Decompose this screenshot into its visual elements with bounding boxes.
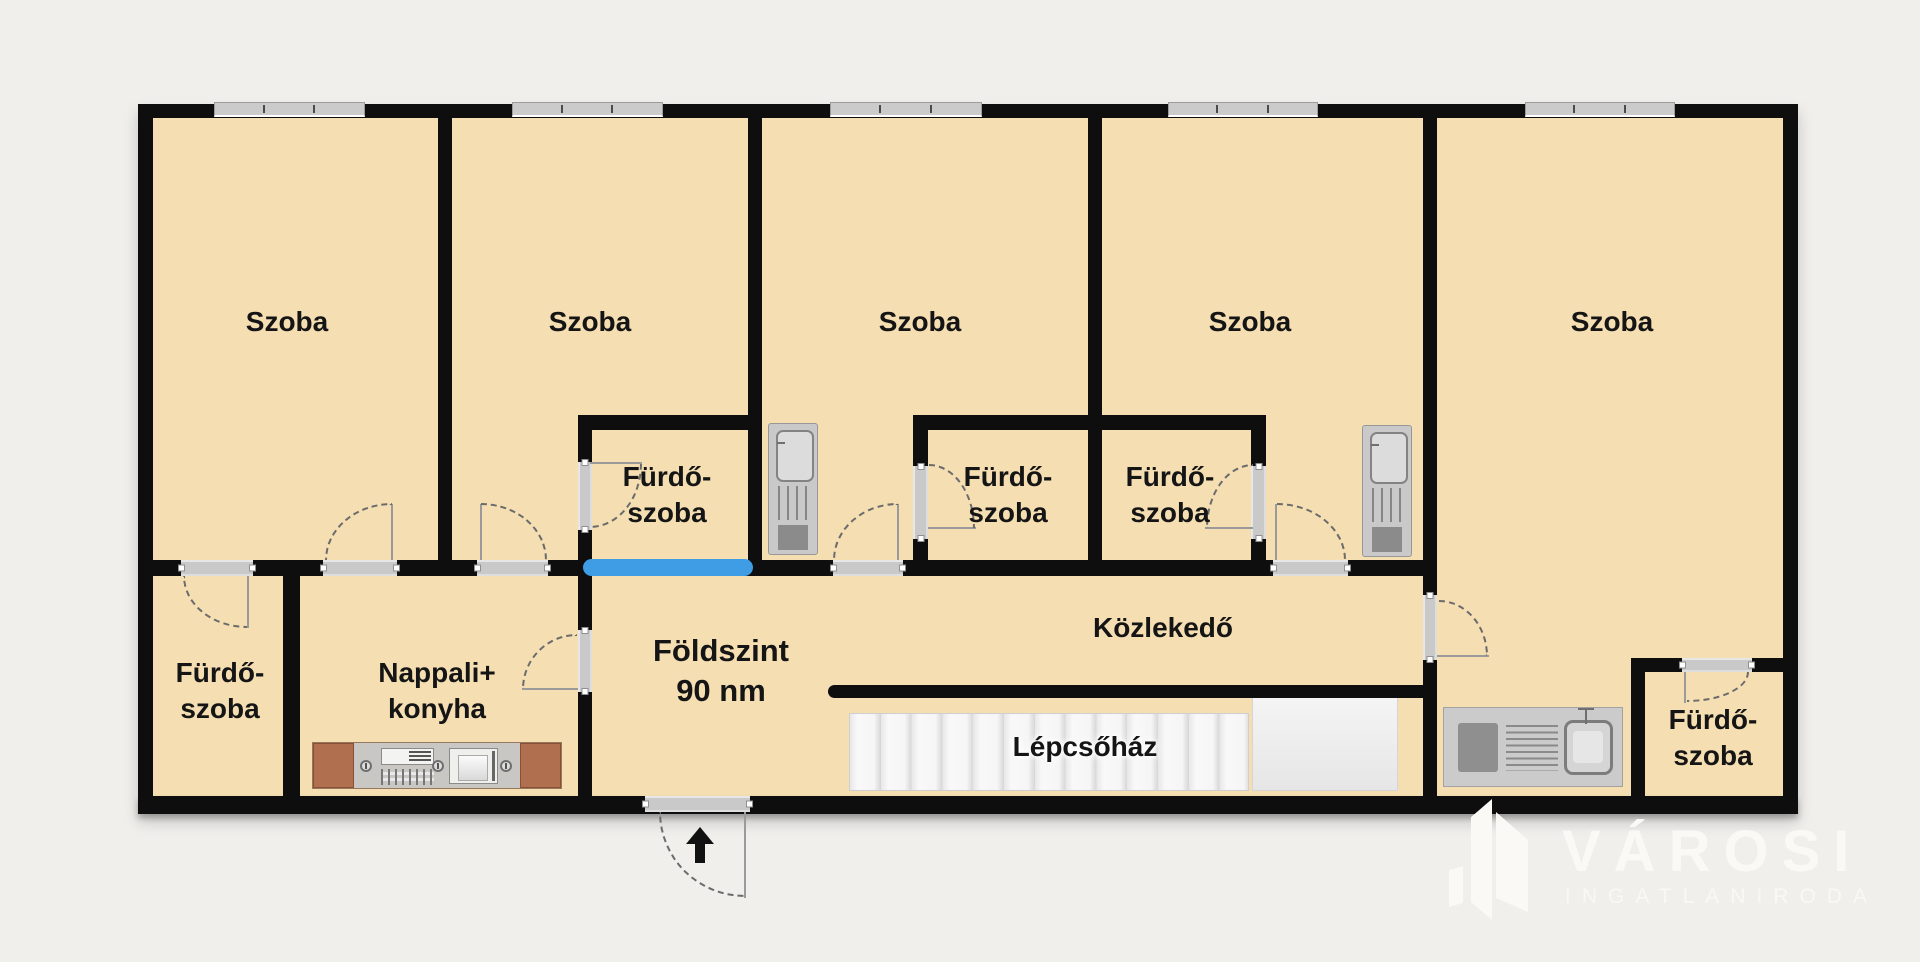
room-label-bathroom-3: Fürdő-szoba <box>964 459 1053 531</box>
door-opening-entrance <box>645 796 750 812</box>
counter-cabinet <box>520 743 561 788</box>
stove-icon <box>1458 723 1498 772</box>
appliance-block-icon <box>778 525 808 550</box>
wall-bath2-top <box>578 415 762 430</box>
water-heater-icon <box>768 423 818 555</box>
logo-building-icon <box>1496 812 1528 912</box>
wall-left <box>138 104 153 814</box>
kitchen-counter-living <box>312 742 562 789</box>
highlighted-wall-segment <box>583 559 753 576</box>
door-opening-bathroom-left <box>181 560 253 576</box>
wall-right <box>1783 104 1798 814</box>
room-label-bedroom-4: Szoba <box>1209 304 1291 340</box>
counter-cabinet <box>313 743 354 788</box>
knob-icon <box>360 760 372 772</box>
drainer-icon <box>1506 725 1558 771</box>
control-dials-icon <box>381 769 434 785</box>
window-bedroom-2 <box>512 102 663 117</box>
floor-area: 90 nm <box>653 671 789 711</box>
door-leaf <box>1684 672 1686 703</box>
kitchen-counter <box>1443 707 1623 787</box>
door-opening-living <box>578 630 592 692</box>
floorplan-canvas: Szoba Szoba Szoba Szoba Szoba Fürdő-szob… <box>0 0 1920 962</box>
window-bedroom-5 <box>1525 102 1675 117</box>
logo-building-icon <box>1449 866 1463 907</box>
room-label-stairwell: Lépcsőház <box>1013 729 1158 765</box>
water-heater-icon <box>1362 425 1412 557</box>
wall-divider-4 <box>1423 118 1437 796</box>
room-label-corridor: Közlekedő <box>1093 610 1233 646</box>
door-opening-bedroom-2 <box>477 560 548 576</box>
sink-icon <box>1564 720 1613 775</box>
door-opening-bedroom-4 <box>1273 560 1348 576</box>
brand-name: VÁROSI <box>1562 818 1862 885</box>
brand-tagline: INGATLANIRODA <box>1565 885 1878 909</box>
basin-icon <box>776 430 814 482</box>
room-label-living: Nappali+konyha <box>378 655 495 727</box>
wall-divider-1 <box>438 118 452 566</box>
door-opening-bathroom-right <box>1682 658 1752 672</box>
door-opening-bedroom-1 <box>323 560 397 576</box>
room-label-bedroom-2: Szoba <box>549 304 631 340</box>
window-bedroom-3 <box>830 102 982 117</box>
entrance-arrow-icon <box>686 827 714 863</box>
radiator-lines-icon <box>778 486 808 520</box>
room-label-bedroom-1: Szoba <box>246 304 328 340</box>
room-label-bathroom-left: Fürdő-szoba <box>176 655 265 727</box>
wall-bathleft-right <box>283 576 300 798</box>
wall-bathright-left <box>1631 658 1645 796</box>
window-bedroom-1 <box>214 102 365 117</box>
basin-icon <box>1370 432 1408 484</box>
door-opening-bedroom-3 <box>833 560 903 576</box>
tap-icon <box>1585 710 1587 724</box>
room-label-bathroom-2: Fürdő-szoba <box>623 459 712 531</box>
stove-icon <box>381 748 434 765</box>
wall-divider-2 <box>748 118 762 566</box>
knob-icon <box>500 760 512 772</box>
wall-bottom <box>138 796 1798 814</box>
wall-stairwell-top <box>828 685 1423 698</box>
room-label-bathroom-4: Fürdő-szoba <box>1126 459 1215 531</box>
door-opening-bathroom-3 <box>913 466 928 539</box>
floor-title: Földszint90 nm <box>653 631 789 711</box>
logo-building-icon <box>1471 799 1492 920</box>
window-bedroom-4 <box>1168 102 1318 117</box>
stairs-landing <box>1252 697 1398 791</box>
wall-bath3-top <box>913 415 1102 430</box>
room-label-bedroom-3: Szoba <box>879 304 961 340</box>
wall-divider-3 <box>1088 118 1102 566</box>
room-label-bathroom-right: Fürdő-szoba <box>1669 702 1758 774</box>
room-label-bedroom-5: Szoba <box>1571 304 1653 340</box>
door-opening-bathroom-4 <box>1251 466 1266 539</box>
appliance-block-icon <box>1372 527 1402 552</box>
wall-bath4-top <box>1088 415 1266 430</box>
knob-icon <box>432 760 444 772</box>
radiator-lines-icon <box>1372 488 1402 522</box>
door-leaf <box>247 576 249 628</box>
door-opening-bedroom-5 <box>1423 595 1437 660</box>
oven-icon <box>449 748 498 784</box>
